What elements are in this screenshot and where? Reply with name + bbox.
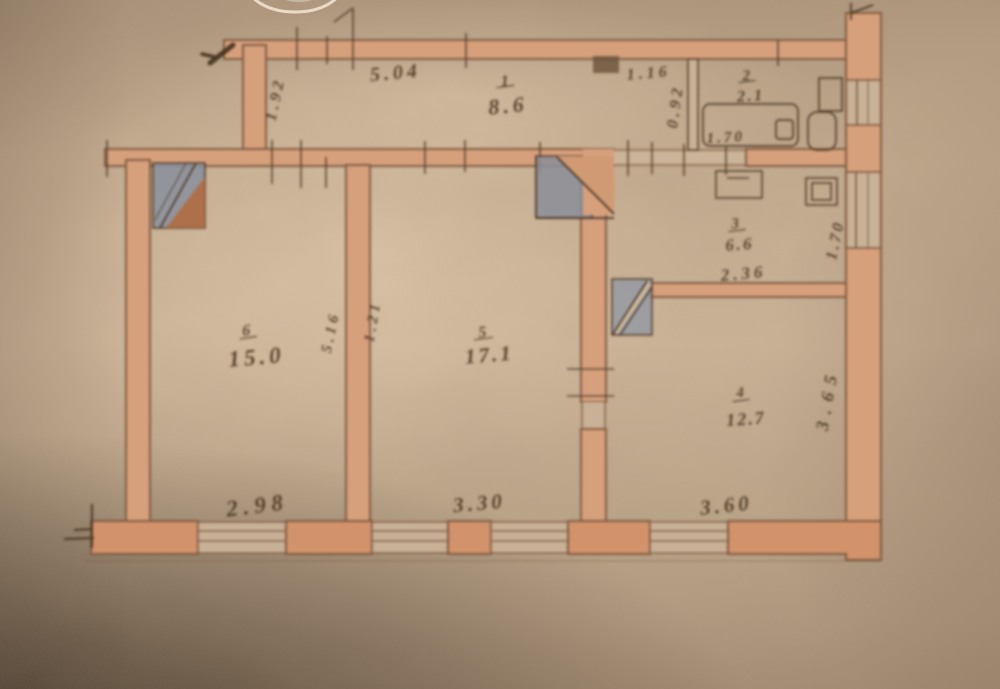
svg-text:12.7: 12.7 (726, 407, 767, 430)
svg-text:1: 1 (500, 73, 509, 91)
svg-text:15.0: 15.0 (227, 342, 285, 372)
svg-text:3.30: 3.30 (451, 489, 507, 518)
svg-text:4: 4 (735, 385, 745, 402)
svg-text:5.16: 5.16 (319, 310, 343, 355)
svg-text:3.65: 3.65 (812, 366, 843, 433)
svg-text:1.70: 1.70 (706, 129, 745, 147)
svg-text:1.70: 1.70 (823, 219, 848, 262)
svg-text:17.1: 17.1 (464, 341, 515, 369)
svg-text:6.6: 6.6 (725, 234, 755, 255)
svg-text:2.98: 2.98 (224, 489, 290, 522)
svg-text:3.60: 3.60 (698, 490, 754, 519)
svg-text:2.36: 2.36 (719, 262, 767, 285)
svg-text:2.1: 2.1 (735, 87, 765, 106)
svg-text:0.92: 0.92 (664, 83, 687, 129)
svg-text:1.16: 1.16 (626, 63, 671, 84)
svg-text:5.04: 5.04 (369, 60, 422, 86)
svg-text:8.6: 8.6 (487, 91, 529, 119)
